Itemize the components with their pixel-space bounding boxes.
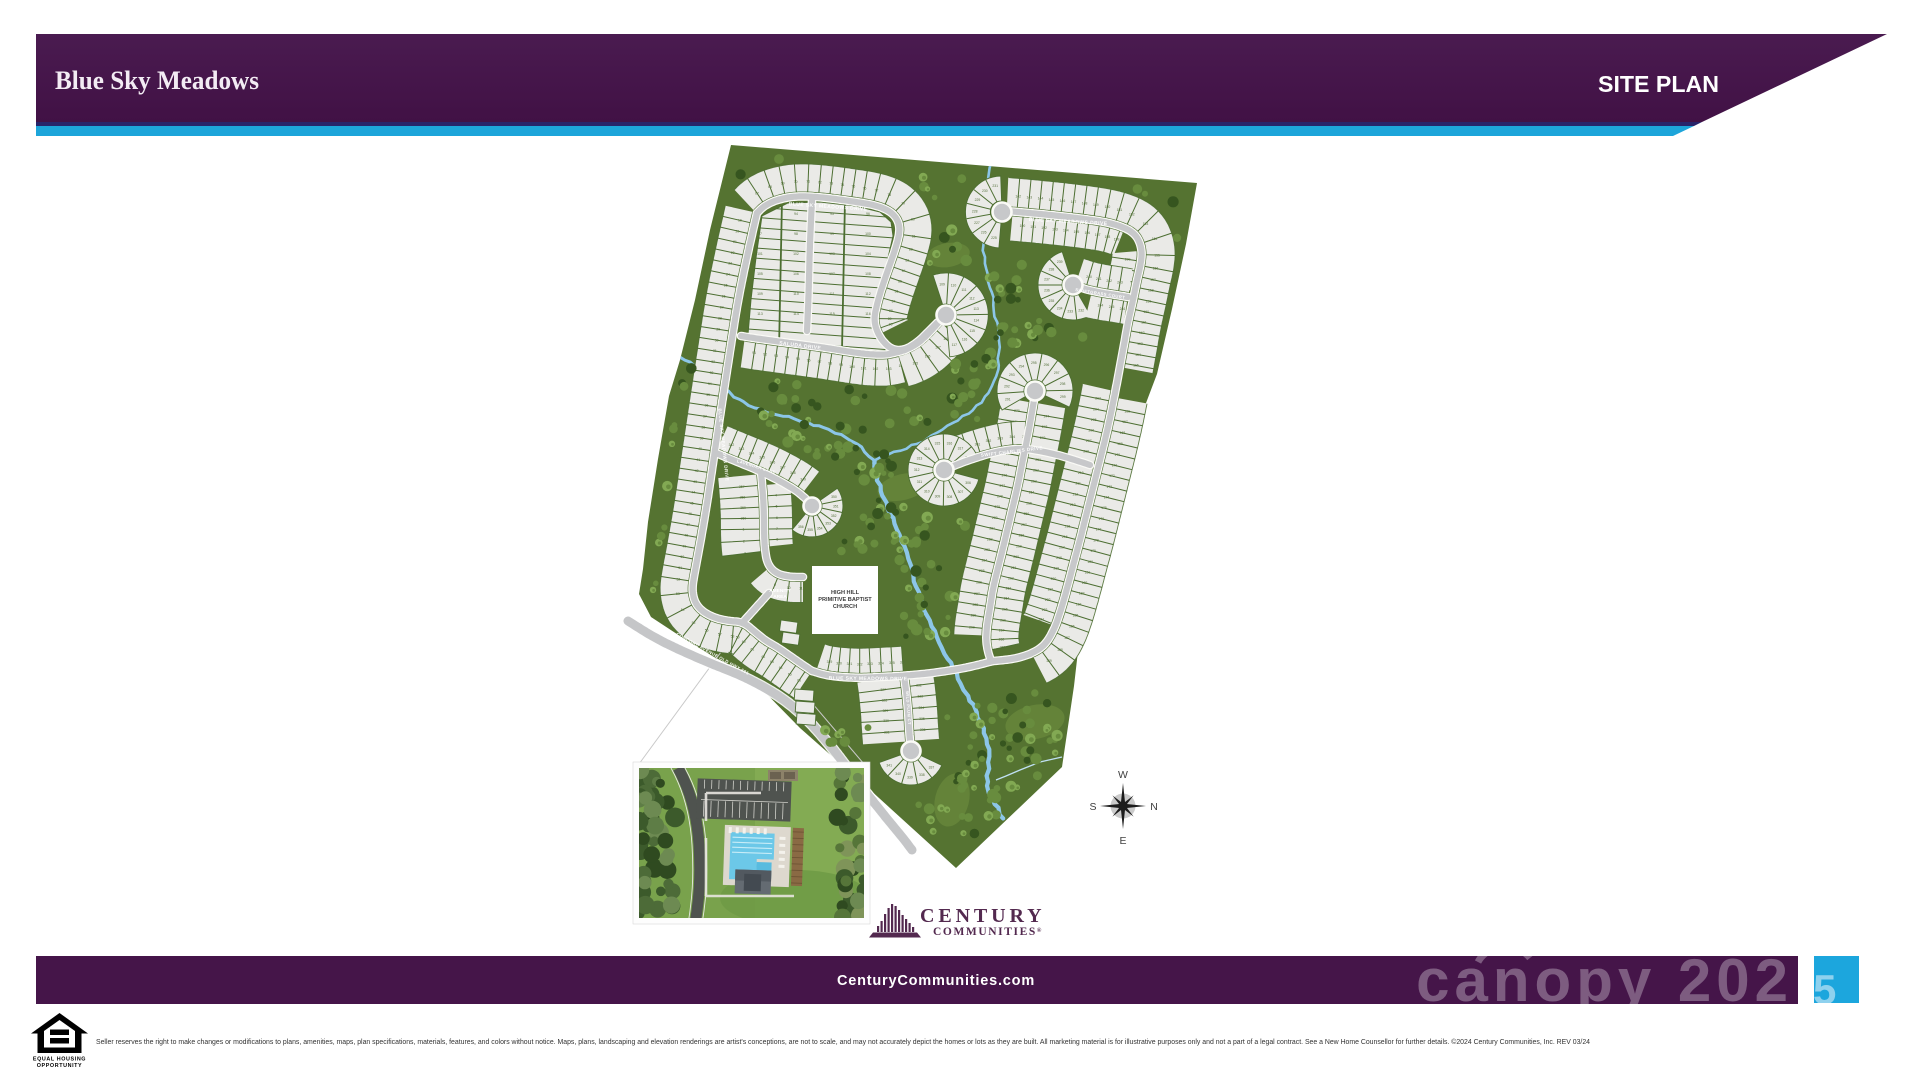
svg-text:102: 102 [793,252,799,256]
svg-text:314: 314 [924,447,930,451]
svg-text:238: 238 [1049,268,1055,272]
svg-text:296: 296 [1044,363,1050,367]
svg-text:338: 338 [919,773,925,777]
svg-text:229: 229 [975,198,981,202]
svg-text:99: 99 [830,232,834,236]
svg-text:EQUAL HOUSING: EQUAL HOUSING [33,1057,86,1063]
svg-text:317: 317 [958,446,964,450]
svg-text:237: 237 [1044,278,1050,282]
svg-text:352: 352 [831,514,837,518]
svg-text:234: 234 [1057,306,1063,310]
svg-text:AREA: AREA [773,594,787,600]
svg-text:110: 110 [793,292,799,296]
svg-text:112: 112 [969,297,975,301]
svg-text:227: 227 [974,221,980,225]
svg-text:97: 97 [758,232,762,236]
svg-text:225: 225 [991,236,997,240]
svg-text:236: 236 [1044,289,1050,293]
svg-text:103: 103 [829,252,835,256]
svg-text:BLUE SKY MEADOWS DRIVE: BLUE SKY MEADOWS DRIVE [829,676,908,683]
svg-text:PRIMITIVE BAPTIST: PRIMITIVE BAPTIST [818,597,872,603]
svg-text:232: 232 [1078,309,1084,313]
svg-text:356: 356 [798,525,804,529]
svg-text:298: 298 [1060,382,1066,386]
svg-text:306: 306 [965,481,971,485]
svg-text:Blue Sky Meadows: Blue Sky Meadows [55,65,259,95]
svg-text:E: E [1119,835,1126,847]
svg-text:COMMUNITIES®: COMMUNITIES® [933,926,1043,938]
svg-text:W: W [1118,769,1128,781]
svg-text:104: 104 [865,252,871,256]
svg-text:canopy 202: canopy 202 [1416,947,1793,1014]
svg-text:230: 230 [982,189,988,193]
svg-text:CenturyCommunities.com: CenturyCommunities.com [837,973,1035,989]
svg-text:228: 228 [972,210,978,214]
svg-text:115: 115 [829,312,835,316]
svg-text:109: 109 [757,292,763,296]
svg-text:98: 98 [794,232,798,236]
svg-text:231: 231 [992,184,998,188]
svg-text:94: 94 [794,212,798,216]
svg-text:113: 113 [757,312,763,316]
svg-text:291: 291 [1005,398,1011,402]
svg-text:114: 114 [974,319,980,323]
svg-text:294: 294 [1019,364,1025,368]
svg-text:100: 100 [865,232,871,236]
svg-text:HIGH HILL: HIGH HILL [831,590,860,596]
svg-text:SITE PLAN: SITE PLAN [1598,71,1719,97]
svg-text:114: 114 [793,312,799,316]
svg-text:235: 235 [1049,299,1055,303]
svg-text:316: 316 [947,442,953,446]
svg-text:CHURCH: CHURCH [833,604,857,610]
svg-text:113: 113 [973,307,979,311]
svg-text:293: 293 [1009,373,1015,377]
svg-text:108: 108 [865,272,871,276]
svg-text:313: 313 [917,457,923,461]
svg-text:S: S [1089,801,1096,813]
svg-text:354: 354 [817,527,823,531]
svg-text:309: 309 [935,495,941,499]
svg-text:292: 292 [1004,385,1010,389]
svg-text:116: 116 [962,338,968,342]
svg-text:308: 308 [947,495,953,499]
svg-text:112: 112 [865,292,871,296]
svg-text:110: 110 [951,283,957,287]
svg-text:N: N [1150,801,1158,813]
svg-text:117: 117 [952,343,958,347]
svg-text:295: 295 [1031,361,1037,365]
svg-text:350: 350 [831,495,837,499]
svg-text:95: 95 [830,212,834,216]
svg-text:310: 310 [924,489,930,493]
svg-text:107: 107 [829,272,835,276]
svg-text:340: 340 [895,772,901,776]
svg-text:312: 312 [914,468,920,472]
svg-text:315: 315 [935,442,941,446]
svg-text:353: 353 [825,522,831,526]
svg-text:111: 111 [961,288,966,292]
svg-text:OPPORTUNITY: OPPORTUNITY [37,1063,83,1069]
svg-text:307: 307 [958,490,964,494]
svg-text:115: 115 [969,329,975,333]
svg-text:299: 299 [1060,395,1066,399]
svg-text:311: 311 [917,480,923,484]
svg-text:226: 226 [981,230,987,234]
svg-text:233: 233 [1067,310,1073,314]
svg-text:351: 351 [833,504,839,508]
svg-text:339: 339 [907,775,913,779]
svg-text:111: 111 [829,292,834,296]
svg-text:105: 105 [757,272,763,276]
svg-text:239: 239 [1057,260,1063,264]
svg-text:337: 337 [929,765,935,769]
svg-text:106: 106 [793,272,799,276]
svg-text:341: 341 [886,764,892,768]
svg-text:CENTURY: CENTURY [920,905,1046,927]
svg-text:116: 116 [865,312,871,316]
svg-text:297: 297 [1054,371,1060,375]
svg-text:101: 101 [757,252,763,256]
svg-text:109: 109 [939,283,945,287]
svg-text:Seller reserves the right to m: Seller reserves the right to make change… [96,1038,1590,1046]
svg-text:AMENITY: AMENITY [769,588,791,594]
svg-text:355: 355 [807,528,813,532]
